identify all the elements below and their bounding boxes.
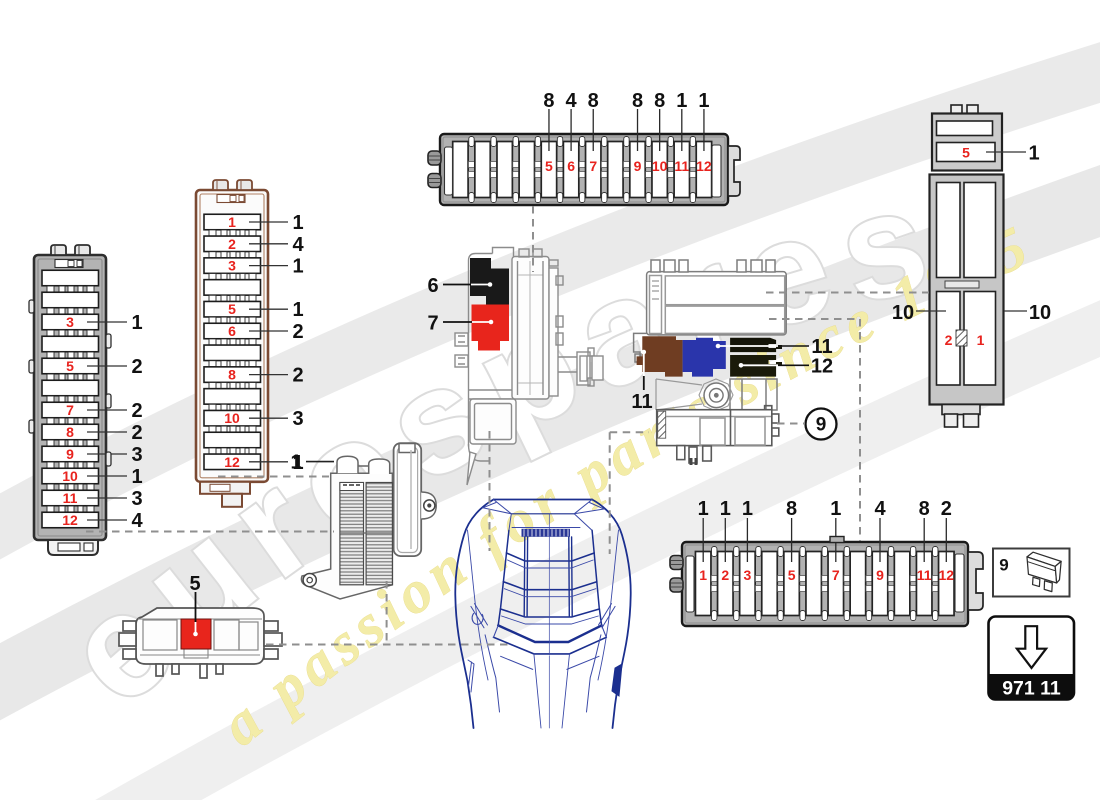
- svg-text:3: 3: [228, 258, 236, 274]
- svg-text:4: 4: [874, 498, 886, 520]
- svg-text:9: 9: [816, 415, 827, 436]
- svg-text:3: 3: [66, 314, 74, 330]
- svg-text:11: 11: [917, 567, 932, 583]
- svg-text:1: 1: [228, 214, 236, 230]
- svg-text:1: 1: [292, 299, 303, 321]
- svg-text:8: 8: [786, 498, 797, 520]
- svg-text:11: 11: [63, 490, 78, 506]
- svg-text:1: 1: [720, 498, 731, 520]
- svg-text:8: 8: [632, 90, 643, 112]
- svg-text:12: 12: [696, 158, 712, 174]
- svg-text:10: 10: [224, 410, 240, 426]
- svg-text:1: 1: [292, 256, 303, 278]
- svg-text:2: 2: [941, 498, 952, 520]
- svg-text:11: 11: [674, 158, 689, 174]
- svg-text:8: 8: [228, 367, 236, 383]
- svg-text:10: 10: [62, 468, 78, 484]
- svg-text:4: 4: [292, 234, 304, 256]
- svg-text:1: 1: [131, 466, 142, 488]
- svg-text:8: 8: [588, 90, 599, 112]
- svg-text:971 11: 971 11: [1002, 678, 1061, 700]
- svg-text:12: 12: [224, 454, 240, 470]
- svg-text:3: 3: [292, 408, 303, 430]
- svg-text:2: 2: [131, 422, 142, 444]
- svg-text:3: 3: [131, 444, 142, 466]
- svg-text:8: 8: [654, 90, 665, 112]
- svg-text:5: 5: [66, 358, 74, 374]
- svg-text:5: 5: [962, 145, 970, 161]
- svg-text:12: 12: [62, 512, 78, 528]
- svg-text:2: 2: [945, 332, 953, 348]
- svg-text:12: 12: [939, 567, 955, 583]
- svg-text:1: 1: [698, 90, 709, 112]
- svg-text:8: 8: [543, 90, 554, 112]
- svg-text:9: 9: [999, 556, 1008, 575]
- svg-text:6: 6: [567, 158, 575, 174]
- svg-text:5: 5: [788, 567, 796, 583]
- svg-text:4: 4: [566, 90, 578, 112]
- svg-text:10: 10: [652, 158, 668, 174]
- svg-text:2: 2: [131, 400, 142, 422]
- svg-text:2: 2: [292, 321, 303, 343]
- svg-text:8: 8: [66, 424, 74, 440]
- svg-text:6: 6: [427, 275, 438, 297]
- svg-text:9: 9: [634, 158, 642, 174]
- svg-text:1: 1: [699, 567, 707, 583]
- svg-text:9: 9: [876, 567, 884, 583]
- svg-text:9: 9: [66, 446, 74, 462]
- svg-text:3: 3: [131, 488, 142, 510]
- svg-text:1: 1: [290, 452, 301, 474]
- svg-text:5: 5: [189, 573, 200, 595]
- svg-text:12: 12: [811, 355, 833, 377]
- svg-text:1: 1: [977, 332, 985, 348]
- svg-text:2: 2: [228, 236, 236, 252]
- svg-text:1: 1: [131, 312, 142, 334]
- svg-text:6: 6: [228, 323, 236, 339]
- svg-text:4: 4: [131, 510, 143, 532]
- svg-text:7: 7: [427, 313, 438, 335]
- svg-text:10: 10: [1029, 302, 1051, 324]
- svg-text:2: 2: [721, 567, 729, 583]
- svg-text:1: 1: [292, 212, 303, 234]
- svg-text:7: 7: [589, 158, 597, 174]
- svg-text:5: 5: [228, 301, 236, 317]
- svg-text:1: 1: [830, 498, 841, 520]
- svg-text:8: 8: [919, 498, 930, 520]
- svg-text:1: 1: [698, 498, 709, 520]
- svg-text:11: 11: [631, 391, 652, 413]
- svg-text:2: 2: [292, 365, 303, 387]
- svg-text:1: 1: [676, 90, 687, 112]
- svg-text:5: 5: [545, 158, 553, 174]
- svg-text:7: 7: [832, 567, 840, 583]
- svg-text:7: 7: [66, 402, 74, 418]
- svg-text:10: 10: [892, 302, 914, 324]
- svg-text:1: 1: [1028, 143, 1039, 165]
- svg-text:1: 1: [742, 498, 753, 520]
- svg-text:3: 3: [744, 567, 752, 583]
- svg-text:2: 2: [131, 356, 142, 378]
